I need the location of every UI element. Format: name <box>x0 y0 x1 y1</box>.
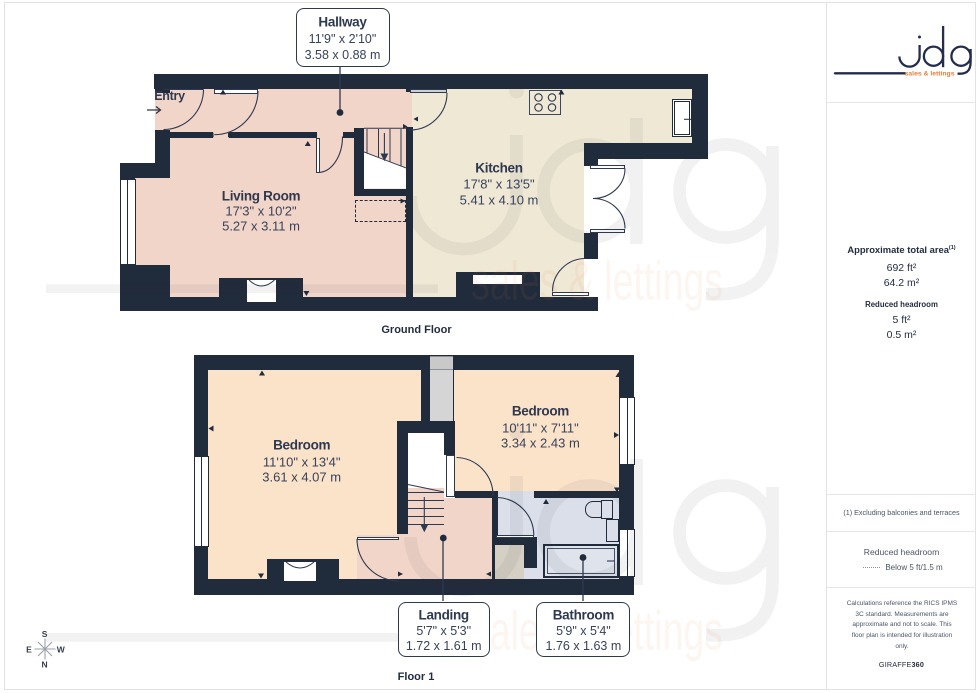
svg-text:sales & lettings: sales & lettings <box>905 71 955 78</box>
svg-text:N: N <box>42 660 48 670</box>
svg-text:W: W <box>57 644 66 654</box>
svg-text:S: S <box>42 629 48 639</box>
svg-text:E: E <box>26 644 32 654</box>
svg-text:sales & lettings: sales & lettings <box>471 250 723 312</box>
